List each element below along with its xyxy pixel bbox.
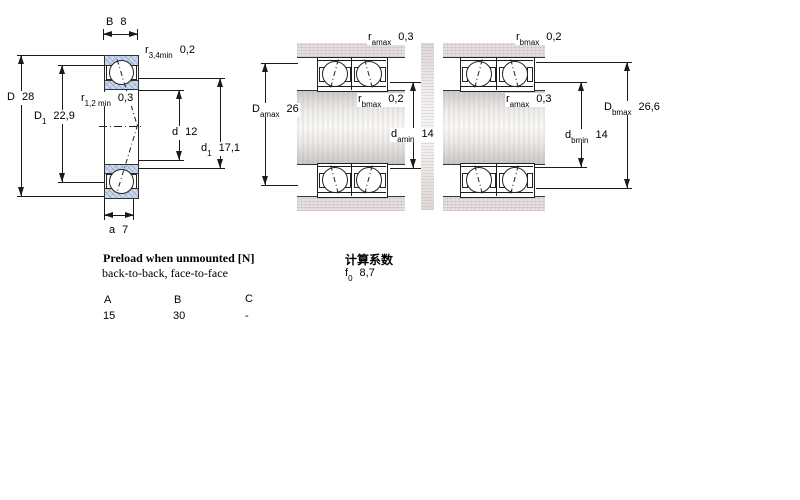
arrow-down [59, 173, 65, 182]
dim-label-r34min: r3,4min0,2 [144, 44, 196, 58]
dim-label-r12min: r1,2 min0,3 [80, 92, 134, 106]
calc-title: 计算系数 [345, 251, 393, 268]
preload-col-c: C [245, 293, 253, 305]
arrow-up [59, 65, 65, 74]
dim-label-ramax: ramax0,3 [505, 93, 553, 107]
preload-val-b: 30 [173, 310, 185, 322]
preload-col-b: B [174, 294, 181, 306]
dim-label-rbmax: rbmax0,2 [515, 31, 563, 45]
preload-val-a: 15 [103, 310, 115, 322]
ball [502, 167, 528, 193]
arrow-down [624, 179, 630, 188]
arrow-up [217, 78, 223, 87]
arrow-up [624, 62, 630, 71]
housing-bottom [443, 196, 545, 211]
arrow-right [129, 31, 138, 37]
preload-col-a: A [104, 294, 111, 306]
bearing-dimension-drawing: B8 r3,4min0,2 D28 D122,9 r1,2 min0,3 d12… [0, 0, 800, 500]
arrow-up [176, 90, 182, 99]
dim-label-rbmax: rbmax0,2 [357, 93, 405, 107]
arrow-up [18, 55, 24, 64]
dim-label-damin: damin14 [390, 128, 435, 142]
preload-subtitle: back-to-back, face-to-face [102, 266, 228, 281]
preload-val-c: - [245, 310, 249, 322]
arrow-down [578, 158, 584, 167]
arrow-down [176, 151, 182, 160]
dim-label-dbmin: dbmin14 [564, 129, 609, 143]
dim-label-d1: d117,1 [200, 142, 241, 156]
housing-bottom [297, 196, 405, 211]
arrow-up [578, 82, 584, 91]
preload-title: Preload when unmounted [N] [103, 251, 254, 266]
shaft-break-strip [421, 43, 434, 210]
arrow-up [262, 63, 268, 72]
dim-label-Dbmax: Dbmax26,6 [603, 101, 661, 115]
dim-label-a: a7 [108, 224, 129, 238]
dim-label-D1: D122,9 [33, 110, 76, 124]
arrow-left [103, 31, 112, 37]
calc-f0: f08,7 [344, 267, 376, 281]
arrow-down [262, 176, 268, 185]
arrow-down [217, 159, 223, 168]
arrow-down [18, 187, 24, 196]
dim-label-d: d12 [171, 126, 198, 140]
ball [356, 167, 382, 193]
arrow-left [104, 212, 113, 218]
ball [322, 61, 348, 87]
dim-label-D: D28 [6, 91, 35, 105]
arrow-down [410, 159, 416, 168]
ball [466, 61, 492, 87]
arrow-up [410, 82, 416, 91]
dim-label-B: B8 [105, 16, 127, 30]
dim-label-ramax: ramax0,3 [367, 31, 415, 45]
dim-label-Damax: Damax26 [251, 103, 300, 117]
arrow-right [125, 212, 134, 218]
